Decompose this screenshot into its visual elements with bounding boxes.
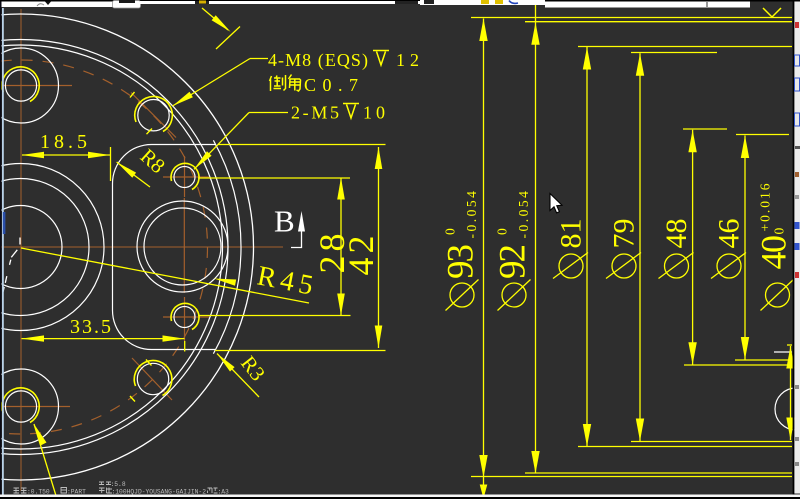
svg-text:48: 48 (660, 219, 693, 249)
svg-text:93: 93 (441, 245, 482, 280)
svg-text:2-M5: 2-M5 (291, 103, 339, 123)
svg-text:C0.7: C0.7 (304, 75, 358, 95)
svg-text::100HQJD-YOUSANG-GAIJIN-2: :100HQJD-YOUSANG-GAIJIN-2 (112, 489, 207, 496)
svg-text::5.8: :5.8 (111, 481, 126, 488)
svg-text::0.T50: :0.T50 (27, 489, 50, 496)
svg-text:81: 81 (555, 219, 588, 249)
svg-text:42: 42 (341, 232, 381, 276)
svg-text:4-M8 (EQS): 4-M8 (EQS) (268, 50, 368, 71)
svg-text:B: B (274, 204, 295, 239)
svg-text::PART: :PART (67, 489, 86, 496)
svg-text:33.5: 33.5 (70, 316, 111, 338)
svg-text:-0.054: -0.054 (464, 189, 479, 239)
svg-text:79: 79 (608, 219, 641, 249)
svg-text:18.5: 18.5 (40, 131, 87, 153)
svg-text:46: 46 (713, 219, 746, 249)
svg-text:0: 0 (495, 228, 510, 235)
svg-text:0: 0 (772, 228, 787, 235)
svg-text:40: 40 (754, 236, 794, 270)
svg-text::A3: :A3 (218, 489, 230, 496)
svg-text:-0.054: -0.054 (516, 189, 531, 239)
svg-text:0: 0 (443, 228, 458, 235)
svg-text:+0.016: +0.016 (758, 182, 773, 232)
svg-text:92: 92 (493, 246, 534, 280)
